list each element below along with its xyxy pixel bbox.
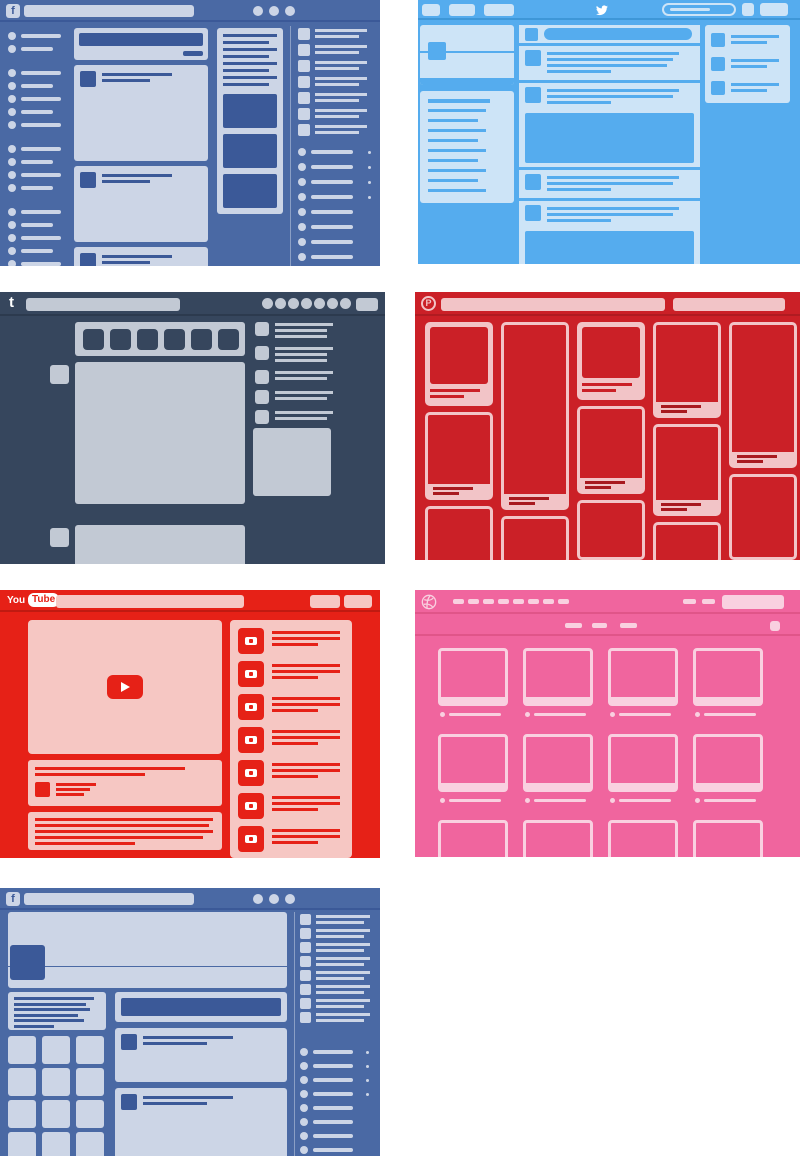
related-video-line[interactable] <box>272 763 340 766</box>
nav-item-line[interactable] <box>21 97 61 101</box>
sidebar-blog-line <box>275 353 327 356</box>
facebook-header: f <box>0 888 380 910</box>
youtube-logo-you[interactable]: You <box>7 595 25 606</box>
suggested-user-line[interactable] <box>731 83 779 86</box>
sidebar-blog-line[interactable] <box>275 391 333 394</box>
pin-footer <box>580 478 642 491</box>
nav-item-line[interactable] <box>21 186 53 190</box>
shot-author-line[interactable] <box>449 799 501 802</box>
nav-item-bullet <box>8 45 16 53</box>
ads-column <box>217 28 283 214</box>
search-pill[interactable] <box>662 3 736 16</box>
related-video-thumbnail[interactable] <box>238 694 264 720</box>
video-title-line <box>35 767 185 770</box>
filter-tab-dash[interactable] <box>592 623 607 628</box>
header-icon-circle[interactable] <box>340 298 351 309</box>
chat-status-dot <box>366 1079 369 1082</box>
filter-tabs <box>565 623 645 629</box>
twitter-bird-icon[interactable] <box>594 3 609 16</box>
pin-meta-line <box>582 389 616 392</box>
nav-item-line[interactable] <box>21 84 53 88</box>
pin-footer-line-2 <box>509 502 535 505</box>
feed-post[interactable] <box>74 166 208 242</box>
thumbnail-play-dot <box>249 705 253 709</box>
related-video-line[interactable] <box>272 664 340 667</box>
left-nav <box>8 30 70 266</box>
post-type-button[interactable] <box>191 329 212 350</box>
photo-thumbnail[interactable] <box>8 1068 36 1096</box>
sidebar-link-line[interactable] <box>315 77 367 80</box>
thumbnail-play-dot <box>249 804 253 808</box>
timeline-post[interactable] <box>115 1028 287 1082</box>
shot-card[interactable] <box>438 734 508 792</box>
shot-author-avatar <box>610 798 615 803</box>
shot-author-line[interactable] <box>619 799 671 802</box>
trend-line[interactable] <box>428 109 486 112</box>
pin-footer <box>732 452 794 465</box>
sidebar-link-line[interactable] <box>316 971 370 974</box>
shot-author-avatar <box>440 798 445 803</box>
post-meta-line <box>143 1042 207 1045</box>
header-icon-circle[interactable] <box>314 298 325 309</box>
related-video-thumbnail[interactable] <box>238 727 264 753</box>
pinterest-header: P <box>415 292 800 316</box>
sidebar-link-icon <box>300 914 311 925</box>
related-video-line <box>272 676 318 679</box>
sidebar-blog-line <box>275 377 327 380</box>
related-video-thumbnail[interactable] <box>238 760 264 786</box>
composer-post-button[interactable] <box>183 51 203 56</box>
window-control-dot[interactable] <box>269 894 279 904</box>
shot-card[interactable] <box>523 734 593 792</box>
radar-block[interactable] <box>253 428 331 496</box>
sidebar-link-line[interactable] <box>316 985 370 988</box>
pin-card[interactable] <box>501 322 569 510</box>
chat-contact-line[interactable] <box>311 180 353 184</box>
facebook-logo[interactable]: f <box>6 892 20 906</box>
header-icon-circle[interactable] <box>288 298 299 309</box>
nav-dash[interactable] <box>453 599 464 604</box>
ad-image[interactable] <box>223 94 277 128</box>
trend-line[interactable] <box>428 189 486 192</box>
header-icon-circle[interactable] <box>301 298 312 309</box>
nav-item-bullet <box>8 260 16 266</box>
tweet-image[interactable] <box>525 113 694 163</box>
post-type-button[interactable] <box>83 329 104 350</box>
nav-item-line[interactable] <box>21 71 61 75</box>
pin-footer <box>428 484 490 497</box>
account-nav <box>683 599 723 605</box>
play-triangle-icon <box>121 682 130 692</box>
nav-item-bullet <box>8 69 16 77</box>
pin-image <box>430 327 488 384</box>
pin-card[interactable] <box>653 424 721 516</box>
tumblr-logo[interactable]: t <box>9 294 14 311</box>
pin-footer <box>656 402 718 415</box>
ad-text-line <box>223 62 277 65</box>
sidebar-link-line-2 <box>315 51 359 54</box>
video-player[interactable] <box>28 620 222 754</box>
youtube-logo-tube[interactable]: Tube <box>28 593 59 607</box>
header-button[interactable] <box>760 3 788 16</box>
related-video-thumbnail[interactable] <box>238 793 264 819</box>
post-type-button[interactable] <box>164 329 185 350</box>
composer-input[interactable] <box>121 998 281 1016</box>
shot-card[interactable] <box>523 820 593 857</box>
nav-item-bullet <box>8 247 16 255</box>
post-author-line <box>102 255 172 258</box>
pin-footer-line <box>433 487 473 490</box>
chat-status-dot <box>368 166 371 169</box>
ad-image[interactable] <box>223 174 277 208</box>
signin-button[interactable] <box>344 595 372 608</box>
nav-item-line[interactable] <box>21 47 53 51</box>
about-line <box>14 1014 78 1017</box>
filter-tab-dash[interactable] <box>620 623 637 628</box>
shot-author-line[interactable] <box>449 713 501 716</box>
pin-card[interactable] <box>425 412 493 500</box>
shot-author-line[interactable] <box>534 799 586 802</box>
sidebar-link-line[interactable] <box>315 61 367 64</box>
chat-status-dot <box>368 181 371 184</box>
chat-contact-line[interactable] <box>311 255 353 259</box>
window-controls <box>253 894 313 904</box>
shot-card[interactable] <box>608 648 678 706</box>
shot-author-line[interactable] <box>534 713 586 716</box>
header-icon-circle[interactable] <box>262 298 273 309</box>
profile-card[interactable] <box>420 25 514 85</box>
chat-contact-line[interactable] <box>311 165 353 169</box>
photo-thumbnail[interactable] <box>8 1036 36 1064</box>
chat-status-dot <box>366 1051 369 1054</box>
sidebar-link-line[interactable] <box>316 957 370 960</box>
pin-footer-line-2 <box>661 508 687 511</box>
chat-contact-line[interactable] <box>311 195 353 199</box>
shot-footer-strip <box>441 697 505 703</box>
facebook-logo[interactable]: f <box>6 4 20 18</box>
search-bar[interactable] <box>441 298 665 311</box>
sidebar-link-line[interactable] <box>316 943 370 946</box>
related-video-line <box>272 775 318 778</box>
tweet-click-area[interactable] <box>519 46 700 80</box>
trend-line[interactable] <box>428 179 478 182</box>
nav-item-line[interactable] <box>21 249 53 253</box>
trend-line[interactable] <box>428 139 478 142</box>
nav-dash[interactable] <box>498 599 509 604</box>
account-dash[interactable] <box>683 599 696 604</box>
sidebar-blog-line <box>275 335 327 338</box>
trend-line[interactable] <box>428 169 486 172</box>
chat-status-dot <box>366 1093 369 1096</box>
channel-avatar[interactable] <box>35 782 50 797</box>
shot-footer-strip <box>526 783 590 789</box>
chat-contact-avatar <box>298 208 306 216</box>
timeline-column <box>519 25 700 264</box>
trend-line[interactable] <box>428 149 486 152</box>
chat-contact-line[interactable] <box>313 1106 353 1110</box>
sidebar-blog-avatar <box>255 322 269 336</box>
header-icon-circle[interactable] <box>275 298 286 309</box>
photo-thumbnail[interactable] <box>76 1068 104 1096</box>
chat-contact-line[interactable] <box>313 1120 353 1124</box>
header-right-bar[interactable] <box>673 298 785 311</box>
nav-item-line[interactable] <box>21 34 61 38</box>
shot-author-line[interactable] <box>704 713 756 716</box>
related-video-line[interactable] <box>272 829 340 832</box>
sidebar-link-line-2 <box>315 35 359 38</box>
related-video-line <box>272 670 340 673</box>
related-video-line[interactable] <box>272 730 340 733</box>
post-composer[interactable] <box>115 992 287 1022</box>
related-video-thumbnail[interactable] <box>238 661 264 687</box>
sidebar-link-line-2 <box>316 921 364 924</box>
shot-card[interactable] <box>693 820 763 857</box>
sidebar-link-line-2 <box>316 991 364 994</box>
sidebar-link-line[interactable] <box>316 1013 370 1016</box>
composer-input[interactable] <box>79 33 203 46</box>
shot-card[interactable] <box>438 820 508 857</box>
chat-contact-avatar <box>300 1062 308 1070</box>
sidebar-link-line[interactable] <box>315 109 367 112</box>
description-line <box>35 842 135 845</box>
related-video-line[interactable] <box>272 697 340 700</box>
pin-footer-line-2 <box>661 410 687 413</box>
nav-item-line[interactable] <box>21 147 61 151</box>
nav-dash[interactable] <box>543 599 554 604</box>
related-video-line <box>272 802 340 805</box>
account-dash[interactable] <box>702 599 715 604</box>
pin-card[interactable] <box>653 522 721 560</box>
related-video-line <box>272 703 340 706</box>
shot-author-line[interactable] <box>619 713 671 716</box>
nav-item-line[interactable] <box>21 123 61 127</box>
post-meta-line <box>102 180 150 183</box>
window-control-dot[interactable] <box>285 894 295 904</box>
photo-thumbnail[interactable] <box>42 1036 70 1064</box>
tweet-click-area[interactable] <box>519 83 700 111</box>
header-corner-button[interactable] <box>356 298 378 311</box>
chat-contact-line[interactable] <box>311 240 353 244</box>
chat-contact-line[interactable] <box>313 1148 353 1152</box>
shot-author-avatar <box>440 712 445 717</box>
photo-thumbnail[interactable] <box>76 1132 104 1156</box>
shot-card[interactable] <box>693 734 763 792</box>
column-divider <box>290 26 291 266</box>
sidebar-blog-line <box>275 397 327 400</box>
shot-card[interactable] <box>523 648 593 706</box>
nav-dash[interactable] <box>483 599 494 604</box>
nav-tab[interactable] <box>422 4 440 16</box>
post-type-button[interactable] <box>137 329 158 350</box>
post-avatar <box>80 172 96 188</box>
related-video-line[interactable] <box>272 796 340 799</box>
pin-card[interactable] <box>729 474 797 560</box>
nav-dash[interactable] <box>468 599 479 604</box>
nav-item-line[interactable] <box>21 223 53 227</box>
sidebar-link-line[interactable] <box>315 125 367 128</box>
sidebar-link-line[interactable] <box>315 93 367 96</box>
sidebar-blog-line[interactable] <box>275 371 333 374</box>
nav-dash[interactable] <box>558 599 569 604</box>
chat-contact-line[interactable] <box>311 150 353 154</box>
nav-item-line[interactable] <box>21 173 61 177</box>
sidebar-link-icon <box>298 60 310 72</box>
chat-contact-line[interactable] <box>313 1064 353 1068</box>
nav-item-line[interactable] <box>21 262 61 266</box>
sidebar-link-line[interactable] <box>316 929 370 932</box>
nav-dash[interactable] <box>513 599 524 604</box>
suggested-user-line[interactable] <box>731 59 779 62</box>
chat-contact-line[interactable] <box>313 1134 353 1138</box>
pin-card[interactable] <box>577 322 645 400</box>
dashboard-post[interactable] <box>75 362 245 504</box>
nav-item-line[interactable] <box>21 160 53 164</box>
pin-card[interactable] <box>425 506 493 560</box>
shot-card[interactable] <box>438 648 508 706</box>
header-icon-circle[interactable] <box>327 298 338 309</box>
window-control-dot[interactable] <box>253 894 263 904</box>
sidebar-link-line-2 <box>315 83 359 86</box>
photo-thumbnail[interactable] <box>42 1100 70 1128</box>
photo-thumbnail[interactable] <box>8 1132 36 1156</box>
nav-item-line[interactable] <box>21 236 61 240</box>
trends-card <box>420 91 514 203</box>
trend-line[interactable] <box>428 159 478 162</box>
post-type-button[interactable] <box>110 329 131 350</box>
main-nav <box>453 599 583 605</box>
pin-card[interactable] <box>729 322 797 468</box>
about-line <box>14 1008 90 1011</box>
shot-author-avatar <box>525 798 530 803</box>
filter-tab-dash[interactable] <box>565 623 582 628</box>
window-control-dot[interactable] <box>269 6 279 16</box>
nav-tab[interactable] <box>484 4 514 16</box>
sidebar-link-line-2 <box>315 131 359 134</box>
post-composer[interactable] <box>74 28 208 60</box>
chat-contact-avatar <box>298 193 306 201</box>
sidebar-blog-avatar <box>255 410 269 424</box>
cover-divider-line <box>8 966 287 967</box>
shot-card[interactable] <box>608 820 678 857</box>
pin-card[interactable] <box>653 322 721 418</box>
shot-card[interactable] <box>608 734 678 792</box>
nav-tab[interactable] <box>449 4 475 16</box>
upload-button[interactable] <box>310 595 340 608</box>
chat-contact-line[interactable] <box>311 225 353 229</box>
header-nav-tabs <box>422 4 542 16</box>
sidebar-link-line[interactable] <box>316 999 370 1002</box>
post-author-line <box>143 1096 233 1099</box>
related-video-thumbnail[interactable] <box>238 826 264 852</box>
shot-card[interactable] <box>693 648 763 706</box>
sidebar-link-icon <box>298 44 310 56</box>
sidebar-blog-line[interactable] <box>275 347 333 350</box>
sidebar-link-line-2 <box>316 1019 364 1022</box>
search-bar[interactable] <box>24 893 194 905</box>
tweet-click-area[interactable] <box>519 170 700 198</box>
sidebar-blog-line[interactable] <box>275 323 333 326</box>
post-type-button[interactable] <box>218 329 239 350</box>
tweet-click-area[interactable] <box>519 201 700 229</box>
pin-footer <box>656 500 718 513</box>
photo-thumbnail[interactable] <box>8 1100 36 1128</box>
chat-contact-line[interactable] <box>311 210 353 214</box>
thumbnail-play-dot <box>249 771 253 775</box>
column-divider <box>294 912 295 1156</box>
photo-thumbnail[interactable] <box>76 1036 104 1064</box>
related-video-line[interactable] <box>272 631 340 634</box>
description-card <box>28 812 222 850</box>
compose-avatar <box>525 28 538 41</box>
sidebar-link-line-2 <box>315 99 359 102</box>
photo-thumbnail[interactable] <box>76 1100 104 1128</box>
chat-contact-line[interactable] <box>313 1050 353 1054</box>
sidebar-link-line[interactable] <box>315 29 367 32</box>
search-bar[interactable] <box>56 595 244 608</box>
post-meta-line <box>102 261 150 264</box>
compose-icon-button[interactable] <box>742 3 754 16</box>
chat-contact-line[interactable] <box>313 1078 353 1082</box>
sidebar-link-line[interactable] <box>315 45 367 48</box>
nav-dash[interactable] <box>528 599 539 604</box>
window-control-dot[interactable] <box>253 6 263 16</box>
nav-item-line[interactable] <box>21 110 53 114</box>
nav-item-line[interactable] <box>21 210 61 214</box>
profile-picture[interactable] <box>10 945 45 980</box>
play-button[interactable] <box>107 675 143 699</box>
timeline-post[interactable] <box>115 1088 287 1156</box>
sidebar-link-line[interactable] <box>316 915 370 918</box>
search-bar[interactable] <box>26 298 180 311</box>
sidebar-blog-line[interactable] <box>275 411 333 414</box>
window-control-dot[interactable] <box>285 6 295 16</box>
related-video-thumbnail[interactable] <box>238 628 264 654</box>
pin-card[interactable] <box>577 500 645 560</box>
about-line <box>14 1003 86 1006</box>
dribbble-logo[interactable] <box>421 594 437 610</box>
pinterest-logo[interactable]: P <box>421 296 436 311</box>
pin-card[interactable] <box>425 322 493 406</box>
tweet-image[interactable] <box>525 231 694 264</box>
sidebar-link-icon <box>300 984 311 995</box>
photo-thumbnail[interactable] <box>42 1132 70 1156</box>
photo-thumbnail[interactable] <box>42 1068 70 1096</box>
chat-contact-line[interactable] <box>313 1092 353 1096</box>
sidebar-link-line-2 <box>316 935 364 938</box>
shot-author-avatar <box>610 712 615 717</box>
about-line <box>14 1025 54 1028</box>
suggested-user-line[interactable] <box>731 35 779 38</box>
feed-post[interactable] <box>74 247 208 266</box>
trend-line[interactable] <box>428 119 478 122</box>
view-toggle-button[interactable] <box>770 621 780 631</box>
pin-card[interactable] <box>577 406 645 494</box>
search-box[interactable] <box>722 595 784 609</box>
sidebar-link-line-2 <box>316 949 364 952</box>
feed-post[interactable] <box>74 65 208 161</box>
trend-line[interactable] <box>428 129 486 132</box>
compose-input[interactable] <box>544 28 692 40</box>
post-avatar <box>121 1034 137 1050</box>
dashboard-post[interactable] <box>75 525 245 564</box>
pinterest-board-window: P <box>415 292 800 560</box>
pin-card[interactable] <box>501 516 569 560</box>
sidebar-blog-line <box>275 329 327 332</box>
facebook-news-feed-window: f <box>0 0 380 266</box>
shot-author-line[interactable] <box>704 799 756 802</box>
ad-image[interactable] <box>223 134 277 168</box>
search-bar[interactable] <box>24 5 194 17</box>
